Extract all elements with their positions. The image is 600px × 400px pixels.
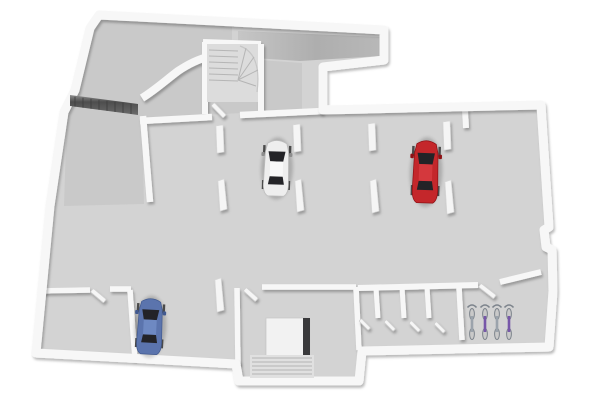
elevator-shaft-dark [303,318,310,356]
bike-room-left-wall [459,287,462,340]
car-mirror-right [163,311,167,315]
compartment-divider-3 [427,287,429,318]
wall-stub-top-right [465,109,466,128]
hall-top-wall-mid [240,111,323,115]
parking-divider-stub [443,121,451,150]
winder-staircase [207,44,258,102]
car-mirror-right [289,153,293,157]
car-rear-window [141,334,157,343]
stair-room-left-wall [237,288,238,365]
floor-plan-canvas [0,0,600,400]
stairwell-top-wall [203,42,261,44]
car-windshield [417,153,435,165]
car-rear-window [268,176,284,185]
car-roof [419,164,433,181]
parking-divider-stub [216,125,224,153]
hall-top-wall-left [140,117,212,121]
parking-divider-stub [293,124,301,152]
car-rear-window [417,181,434,191]
car-mirror-left [261,152,265,156]
car-mirror-right [438,155,442,160]
car-windshield [142,309,160,320]
compartment-divider-1 [376,288,378,318]
floor-plan-render [0,0,600,400]
parking-divider-stub [368,123,376,151]
car-mirror-left [135,310,139,314]
car-windshield [268,151,285,162]
car-mirror-left [410,154,414,159]
car-roof [143,319,157,335]
car-roof [270,161,284,176]
stair-room-right-wall [356,287,359,350]
elevator-car [266,318,306,356]
compartment-divider-2 [402,287,404,318]
